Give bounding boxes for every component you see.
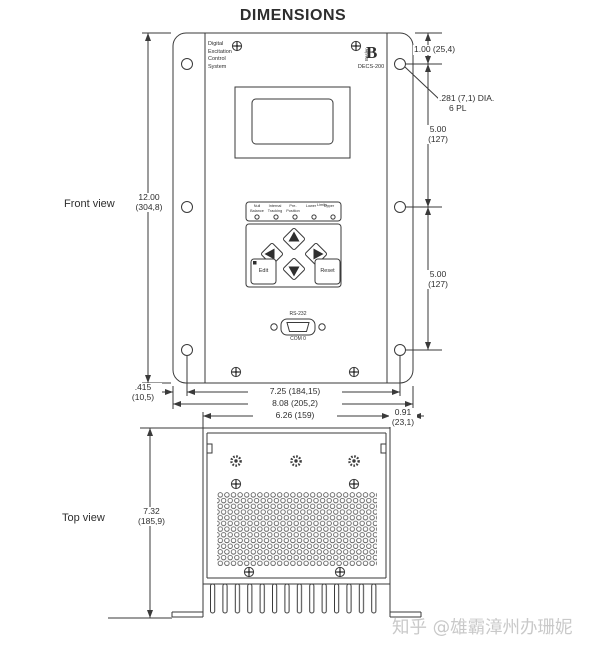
dim-overall-width: 8.08 (205,2) (248, 399, 342, 409)
brand-vertical-text: Basler (364, 48, 369, 61)
dim-top-to-hole: 1.00 (25,4) (413, 45, 456, 55)
dim-hole-note: .281 (7,1) DIA. 6 PL (438, 94, 495, 113)
dim-chassis-width: 6.26 (159) (253, 411, 337, 421)
led-label-pre-position: Pre- Position (284, 204, 302, 213)
terminal-studs (231, 456, 358, 465)
dim-hole-span: 7.25 (184,15) (248, 387, 342, 397)
device-name: Digital Excitation Control System (208, 41, 232, 71)
dim-hole-spacing-upper: 5.00 (127) (419, 125, 457, 144)
front-view-label: Front view (64, 198, 115, 210)
lcd-window (252, 99, 333, 144)
dim-edge-offset: .415 (10,5) (124, 383, 162, 402)
top-view-drawing (172, 428, 421, 617)
com-port-label: COM 0 (278, 336, 318, 342)
dim-hole-spacing-lower: 5.00 (127) (419, 270, 457, 289)
dim-depth: 7.32 (185,9) (132, 507, 171, 526)
dimension-drawing-page: DIMENSIONS Front view 12.00 (304,8) 1.00… (0, 0, 600, 649)
heatsink-fins (210, 584, 380, 614)
watermark: 知乎 @雄霸漳州办珊妮 (392, 614, 573, 639)
led-label-null-balance: Null Balance (248, 204, 266, 213)
edit-led-square (253, 261, 257, 265)
dim-height: 12.00 (304,8) (129, 193, 169, 212)
brand-logo: Basler B (366, 44, 377, 63)
led-label-limits: Limits (306, 203, 338, 208)
rs232-label: RS-232 (278, 311, 318, 317)
engineering-drawing (0, 0, 600, 649)
top-view-label: Top view (62, 512, 105, 524)
right-wall-tab (381, 444, 386, 453)
vent-perforations (217, 492, 377, 566)
edit-button-label: Edit (251, 268, 276, 274)
page-title: DIMENSIONS (183, 7, 403, 25)
led-label-internal-tracking: Internal Tracking (266, 204, 284, 213)
model-label: DECS-200 (348, 64, 394, 72)
left-wall-tab (207, 444, 212, 453)
dim-flange: 0.91 (23,1) (389, 408, 417, 427)
reset-button-label: Reset (315, 268, 340, 274)
